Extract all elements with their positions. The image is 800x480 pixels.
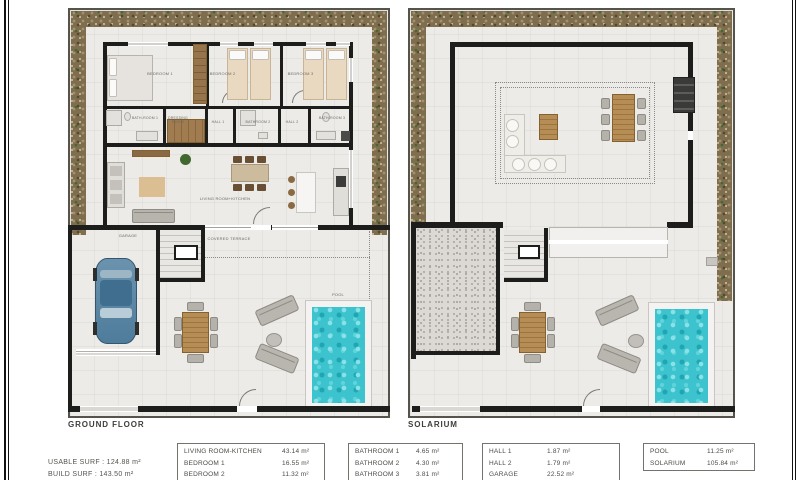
cushion bbox=[506, 119, 519, 132]
stair-core bbox=[518, 245, 540, 259]
garage-door bbox=[76, 349, 156, 356]
dining-chair bbox=[233, 156, 242, 163]
gravel-border-left bbox=[411, 11, 426, 223]
cushion bbox=[544, 158, 557, 171]
page-frame-line-left-outer bbox=[4, 0, 6, 480]
table-row: HALL 1 1.87 m² bbox=[483, 446, 619, 458]
solarium-chair bbox=[637, 130, 646, 141]
area-table-bathrooms: BATHROOM 1 4.65 m² BATHROOM 2 4.30 m² BA… bbox=[348, 443, 463, 480]
gravel-border-right bbox=[717, 11, 732, 301]
area-name: BEDROOM 2 bbox=[184, 471, 282, 478]
table-row: LIVING ROOM-KITCHEN 43.14 m² bbox=[178, 446, 324, 458]
gravel-border-top bbox=[411, 11, 732, 27]
outdoor-chair bbox=[547, 317, 555, 331]
pillow bbox=[229, 50, 246, 60]
table-row: SOLARIUM 105.84 m² bbox=[644, 458, 754, 470]
gate-opening bbox=[237, 406, 257, 412]
pool-water bbox=[655, 309, 708, 403]
side-table bbox=[628, 334, 644, 348]
washer bbox=[341, 131, 350, 141]
table-row: BATHROOM 2 4.30 m² bbox=[349, 458, 462, 470]
window bbox=[128, 42, 168, 46]
cushion bbox=[528, 158, 541, 171]
pool-water bbox=[312, 307, 365, 403]
bar-stool bbox=[288, 176, 295, 183]
table-row: BEDROOM 2 11.32 m² bbox=[178, 469, 324, 480]
pillow bbox=[305, 50, 322, 60]
table-row: POOL 11.25 m² bbox=[644, 446, 754, 458]
area-name: LIVING ROOM-KITCHEN bbox=[184, 448, 282, 455]
solarium-caption: SOLARIUM bbox=[408, 420, 458, 429]
pillow bbox=[109, 58, 117, 76]
plant bbox=[180, 154, 191, 165]
shower bbox=[106, 110, 122, 126]
wall-boundary-west bbox=[68, 225, 72, 412]
pergola-beam-line bbox=[549, 240, 668, 244]
car-wheel bbox=[93, 268, 97, 281]
bar-stool bbox=[288, 202, 295, 209]
bar-stool bbox=[288, 189, 295, 196]
area-value: 11.25 m² bbox=[707, 448, 748, 455]
room-label-bedroom2: BEDROOM 2 bbox=[200, 71, 245, 76]
sideboard bbox=[132, 150, 170, 157]
solarium-dining-table bbox=[612, 94, 635, 142]
pillow bbox=[328, 50, 345, 60]
terrace-dotted-line bbox=[205, 257, 370, 258]
driveway-gate bbox=[80, 406, 138, 412]
area-value: 3.81 m² bbox=[416, 471, 456, 478]
sliding-door bbox=[205, 225, 251, 230]
solarium-chair bbox=[637, 114, 646, 125]
garage-east-wall bbox=[156, 228, 160, 355]
dining-chair bbox=[233, 184, 242, 191]
parapet-gap bbox=[688, 131, 693, 140]
wall-bath1-dressing bbox=[163, 106, 166, 146]
area-value: 1.79 m² bbox=[547, 460, 613, 467]
room-label-bathroom1: BATH-ROOM 1 bbox=[131, 116, 159, 120]
outdoor-chair bbox=[524, 354, 541, 363]
terrace-dotted-line bbox=[369, 231, 370, 301]
bbq-unit bbox=[673, 77, 695, 113]
window-terrace-glass bbox=[349, 150, 353, 208]
room-label-garage: GARAGE bbox=[112, 233, 144, 238]
area-value: 105.84 m² bbox=[707, 460, 748, 467]
door-opening bbox=[251, 225, 271, 230]
coffee-table bbox=[539, 114, 558, 140]
wall-dressing-hall1 bbox=[205, 106, 208, 146]
room-label-bedroom3: BEDROOM 3 bbox=[278, 71, 323, 76]
area-name: HALL 1 bbox=[489, 448, 547, 455]
area-value: 4.65 m² bbox=[416, 448, 456, 455]
outdoor-table bbox=[519, 312, 546, 353]
gravel-roof-square bbox=[416, 228, 500, 355]
car-wheel bbox=[93, 322, 97, 335]
utility-box bbox=[706, 257, 718, 266]
car-windshield bbox=[100, 308, 132, 318]
solarium-chair bbox=[637, 98, 646, 109]
page-frame-line-right-inner bbox=[792, 0, 793, 480]
car-wheel bbox=[135, 268, 139, 281]
table-row: BATHROOM 1 4.65 m² bbox=[349, 446, 462, 458]
window bbox=[349, 58, 353, 82]
bathtub bbox=[136, 131, 158, 141]
room-label-bedroom1: BEDROOM 1 bbox=[135, 71, 185, 76]
outdoor-chair bbox=[511, 317, 519, 331]
toilet bbox=[124, 112, 131, 121]
table-row: BEDROOM 1 16.55 m² bbox=[178, 458, 324, 470]
car-roof bbox=[100, 280, 132, 306]
wall-bath2-hall2 bbox=[278, 106, 281, 146]
area-value: 4.30 m² bbox=[416, 460, 456, 467]
area-name: POOL bbox=[650, 448, 707, 455]
dining-table bbox=[231, 164, 269, 182]
gravel-border-top bbox=[71, 11, 387, 27]
dining-chair bbox=[245, 156, 254, 163]
gravel-border-left bbox=[71, 11, 86, 235]
window bbox=[254, 42, 273, 46]
area-value: 43.14 m² bbox=[282, 448, 318, 455]
table-row: BATHROOM 3 3.81 m² bbox=[349, 469, 462, 480]
area-name: SOLARIUM bbox=[650, 460, 707, 467]
area-value: 16.55 m² bbox=[282, 460, 318, 467]
parapet-corner bbox=[667, 222, 693, 228]
sink bbox=[258, 132, 268, 139]
area-value: 22.52 m² bbox=[547, 471, 613, 478]
area-name: BATHROOM 2 bbox=[355, 460, 416, 467]
area-table-living-bedrooms: LIVING ROOM-KITCHEN 43.14 m² BEDROOM 1 1… bbox=[177, 443, 325, 480]
floor-plan-sheet: BEDROOM 1 BEDROOM 2 BEDROOM 3 BATH-ROOM … bbox=[0, 0, 800, 480]
car-rear-window bbox=[100, 270, 132, 278]
room-label-bathroom3: BATH-ROOM 3 bbox=[318, 116, 346, 120]
stair-core bbox=[174, 245, 198, 260]
side-table bbox=[266, 333, 282, 347]
wall-bedroom-divider bbox=[103, 106, 353, 109]
cushion bbox=[512, 158, 525, 171]
solarium-chair bbox=[601, 98, 610, 109]
appliance bbox=[110, 166, 122, 176]
table-row: HALL 2 1.79 m² bbox=[483, 458, 619, 470]
page-frame-line-right-outer bbox=[795, 0, 797, 480]
bathtub bbox=[316, 131, 336, 140]
gate-opening bbox=[582, 406, 600, 412]
gravel-border-right bbox=[372, 11, 387, 235]
area-name: BEDROOM 1 bbox=[184, 460, 282, 467]
solarium-chair bbox=[601, 130, 610, 141]
outdoor-chair bbox=[174, 317, 182, 331]
parapet-west bbox=[450, 42, 455, 228]
room-label-living: LIVING ROOM+KITCHEN bbox=[185, 196, 265, 201]
pillow bbox=[109, 79, 117, 97]
car-wheel bbox=[135, 322, 139, 335]
wall-hall-divider bbox=[103, 143, 353, 147]
area-table-halls-garage: HALL 1 1.87 m² HALL 2 1.79 m² GARAGE 22.… bbox=[482, 443, 620, 480]
cushion bbox=[506, 135, 519, 148]
outdoor-chair bbox=[210, 334, 218, 348]
sliding-door bbox=[272, 225, 318, 230]
room-label-terrace: COVERED TERRACE bbox=[196, 236, 262, 241]
pillow bbox=[252, 50, 269, 60]
area-table-pool-solarium: POOL 11.25 m² SOLARIUM 105.84 m² bbox=[643, 443, 755, 471]
build-surface-text: BUILD SURF : 143.50 m² bbox=[48, 471, 134, 478]
area-name: BATHROOM 1 bbox=[355, 448, 416, 455]
wall-hall2-bath3 bbox=[308, 106, 311, 146]
outdoor-table bbox=[182, 312, 209, 353]
window bbox=[220, 42, 238, 46]
driveway-gate bbox=[420, 406, 480, 412]
page-frame-line-left-inner bbox=[8, 0, 9, 480]
outdoor-chair bbox=[524, 302, 541, 311]
outdoor-chair bbox=[187, 302, 204, 311]
usable-surface-text: USABLE SURF : 124.88 m² bbox=[48, 459, 141, 466]
outdoor-chair bbox=[174, 334, 182, 348]
outdoor-chair bbox=[547, 334, 555, 348]
area-value: 11.32 m² bbox=[282, 471, 318, 478]
stair-wall-bottom bbox=[158, 278, 205, 282]
dining-chair bbox=[257, 184, 266, 191]
area-name: GARAGE bbox=[489, 471, 547, 478]
table-row: GARAGE 22.52 m² bbox=[483, 469, 619, 480]
dining-chair bbox=[245, 184, 254, 191]
appliance bbox=[110, 194, 122, 204]
window bbox=[306, 42, 326, 46]
outdoor-chair bbox=[210, 317, 218, 331]
parapet-north bbox=[450, 42, 693, 47]
room-label-dressing: DRESSING ROOM bbox=[163, 116, 193, 125]
stair-wall bbox=[544, 228, 548, 282]
area-name: BATHROOM 3 bbox=[355, 471, 416, 478]
solarium-chair bbox=[601, 114, 610, 125]
outdoor-chair bbox=[187, 354, 204, 363]
stair-wall-bottom bbox=[504, 278, 548, 282]
outdoor-chair bbox=[511, 334, 519, 348]
ground-floor-caption: GROUND FLOOR bbox=[68, 420, 145, 429]
appliance bbox=[110, 180, 122, 190]
room-label-hall2: HALL 2 bbox=[280, 120, 304, 124]
area-name: HALL 2 bbox=[489, 460, 547, 467]
room-label-bathroom2: BATHROOM 2 bbox=[240, 120, 276, 124]
window bbox=[336, 42, 350, 46]
oven bbox=[336, 176, 346, 187]
rug bbox=[139, 177, 165, 197]
wall-hall1-bath2 bbox=[233, 106, 236, 146]
room-label-pool: POOL bbox=[324, 292, 352, 297]
dining-chair bbox=[257, 156, 266, 163]
sofa-back-line bbox=[134, 212, 173, 213]
room-label-hall1: HALL 1 bbox=[206, 120, 230, 124]
kitchen-island bbox=[296, 172, 316, 213]
area-value: 1.87 m² bbox=[547, 448, 613, 455]
